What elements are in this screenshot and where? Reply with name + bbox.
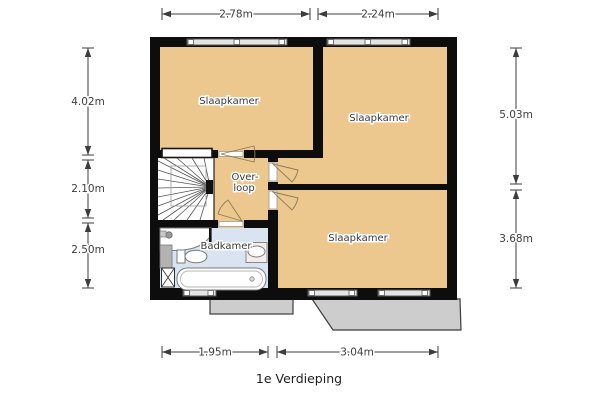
door-leaf-tr [269,163,277,181]
door-leaf-bath [219,222,243,227]
duct [160,245,172,268]
window-bottom-left [308,290,357,296]
dimension-right-1: 5.03m [499,48,533,184]
dimension-top-1: 2.78m [162,8,310,21]
stair-newel-post [206,180,213,194]
label-slaapkamer-top-left: Slaapkamer [199,96,259,107]
dim-top-2: 2.24m [361,9,395,21]
roof-overhang-right [312,299,461,330]
room-slaapkamer-top-right-ext [278,158,323,184]
label-badkamer: Badkamer [200,241,252,252]
dim-left-1: 4.02m [71,96,105,108]
label-overloop-line1: Over- [231,172,258,183]
door-leaf-br [269,191,277,209]
shaft [162,268,175,287]
window-bottom-right [378,290,430,296]
dimension-left-2: 2.10m [71,160,105,218]
label-slaapkamer-top-right: Slaapkamer [349,113,409,124]
dim-right-1: 5.03m [499,109,533,121]
dim-left-2: 2.10m [71,183,105,195]
dimension-bottom-2: 3.04m [277,346,438,359]
roof-overhang-left [210,299,293,314]
window-top-right [327,39,410,45]
shower-faucet-icon [166,232,172,238]
dim-left-3: 2.50m [71,244,105,256]
label-slaapkamer-bottom-right: Slaapkamer [328,233,388,244]
bathtub [177,268,266,290]
dimension-left-1: 4.02m [71,48,105,155]
window-bottom-bath [183,290,216,296]
floor-plan-page: Slaapkamer Slaapkamer Slaapkamer Over- l… [0,0,600,400]
label-overloop-line2: loop [233,183,254,194]
dimension-top-2: 2.24m [318,8,438,21]
dimension-right-2: 3.68m [499,190,533,288]
roof-overhangs [210,299,461,330]
dim-bottom-2: 3.04m [340,347,374,359]
dim-right-2: 3.68m [499,233,533,245]
page-title: 1e Verdieping [256,371,342,386]
dimension-left-3: 2.50m [71,223,105,288]
floor-plan: Slaapkamer Slaapkamer Slaapkamer Over- l… [0,0,600,400]
shower-faucet-handle [160,231,166,237]
window-top-left [187,39,287,45]
dim-top-1: 2.78m [219,9,253,21]
dim-bottom-1: 1.95m [198,347,232,359]
dimension-bottom-1: 1.95m [162,346,268,359]
stair-railing [162,149,212,158]
